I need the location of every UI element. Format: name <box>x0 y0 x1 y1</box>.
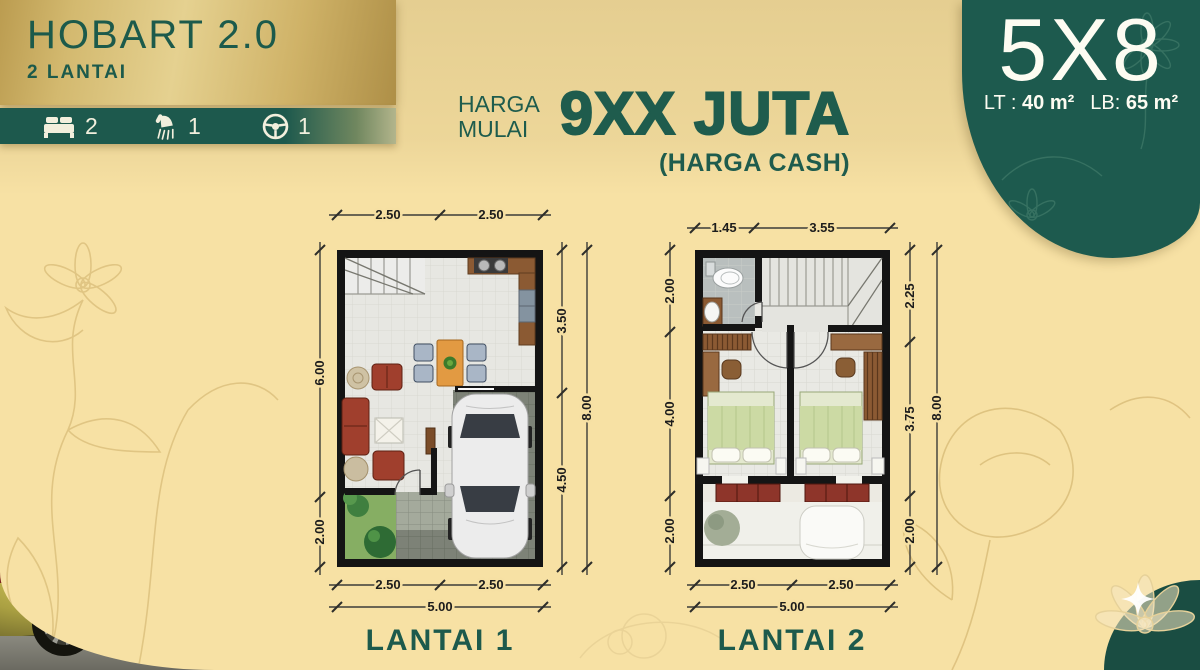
svg-text:8.00: 8.00 <box>579 395 594 420</box>
garage-count: 1 <box>298 113 311 140</box>
svg-text:1.45: 1.45 <box>711 220 736 235</box>
svg-text:2.25: 2.25 <box>902 283 917 308</box>
price-block: HARGA MULAI 9XX JUTA (HARGA CASH) <box>458 85 850 178</box>
stairs <box>762 258 882 332</box>
bedroom-count: 2 <box>85 113 98 140</box>
size-panel: 5X8 LT : 40 m² LB: 65 m² <box>962 0 1200 258</box>
stairs <box>345 258 425 294</box>
price-note: (HARGA CASH) <box>659 149 850 178</box>
svg-text:2.00: 2.00 <box>902 518 917 543</box>
bed-icon <box>42 112 76 140</box>
svg-text:8.00: 8.00 <box>929 395 944 420</box>
svg-text:2.50: 2.50 <box>828 577 853 592</box>
page-subtitle: 2 LANTAI <box>27 62 369 84</box>
svg-text:4.00: 4.00 <box>662 401 677 426</box>
feature-bedrooms: 2 <box>42 112 152 140</box>
svg-text:3.75: 3.75 <box>902 406 917 431</box>
feature-garage: 1 <box>262 113 372 140</box>
floorplan-lantai-1: 2.50 2.50 6.00 2.00 3.50 4.50 8.00 2.50 … <box>300 200 650 660</box>
svg-text:6.00: 6.00 <box>312 360 327 385</box>
floral-decoration-left <box>0 180 288 670</box>
price-label: HARGA MULAI <box>458 85 540 143</box>
svg-text:3.50: 3.50 <box>554 308 569 333</box>
svg-text:4.50: 4.50 <box>554 467 569 492</box>
size-stats: LT : 40 m² LB: 65 m² <box>962 92 1200 115</box>
svg-text:5.00: 5.00 <box>779 599 804 614</box>
floor-label: LANTAI 2 <box>718 624 867 657</box>
svg-text:3.55: 3.55 <box>809 220 834 235</box>
title-panel: HOBART 2.0 2 LANTAI <box>0 0 396 105</box>
svg-text:2.50: 2.50 <box>375 577 400 592</box>
lt-value: 40 m² <box>1022 92 1074 114</box>
balcony <box>703 484 882 559</box>
brochure-page: HOBART 2.0 2 LANTAI 2 <box>0 0 1200 670</box>
price-amount: 9XX JUTA <box>560 85 850 142</box>
bathroom-count: 1 <box>188 113 201 140</box>
shower-icon <box>152 113 179 140</box>
svg-text:2.50: 2.50 <box>375 207 400 222</box>
page-title: HOBART 2.0 <box>27 15 369 55</box>
floorplan-lantai-2: 1.45 3.55 2.00 4.00 2.00 2.25 3.75 2.00 … <box>650 200 970 660</box>
cream-surface: HOBART 2.0 2 LANTAI 2 <box>0 0 1200 670</box>
lb-label: LB: <box>1090 92 1120 114</box>
svg-text:2.50: 2.50 <box>478 577 503 592</box>
svg-text:2.50: 2.50 <box>478 207 503 222</box>
svg-text:2.50: 2.50 <box>730 577 755 592</box>
svg-text:2.00: 2.00 <box>662 278 677 303</box>
svg-text:2.00: 2.00 <box>312 519 327 544</box>
bathroom <box>703 258 755 326</box>
lb-value: 65 m² <box>1126 92 1178 114</box>
car <box>445 394 535 558</box>
floor-label: LANTAI 1 <box>366 624 515 657</box>
feature-bathrooms: 1 <box>152 113 262 140</box>
lt-label: LT : <box>984 92 1017 114</box>
steering-wheel-icon <box>262 113 289 140</box>
feature-bar: 2 1 <box>0 108 396 144</box>
svg-text:5.00: 5.00 <box>427 599 452 614</box>
svg-text:2.00: 2.00 <box>662 518 677 543</box>
size-dimensions: 5X8 <box>962 6 1200 94</box>
